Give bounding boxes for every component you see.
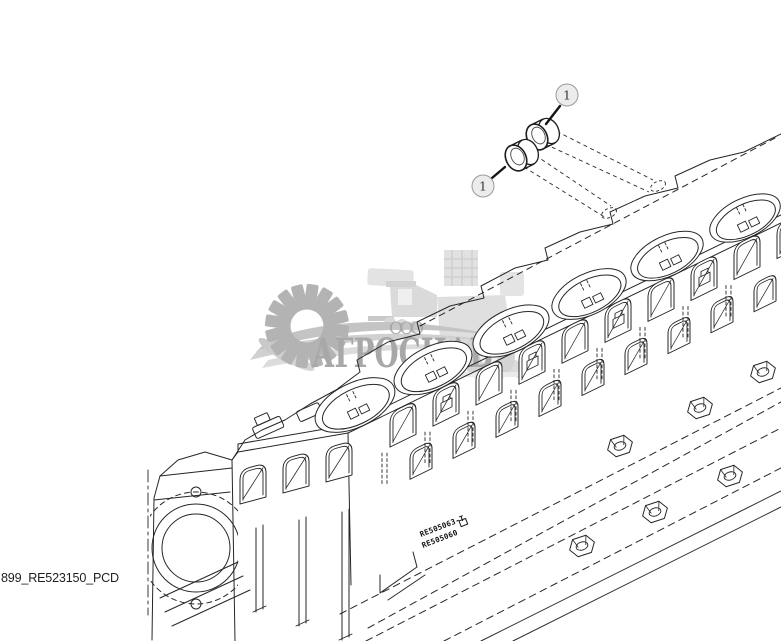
engine-block-line-art: RE505063-T RE505060: [140, 134, 781, 641]
parts-diagram-canvas: ООО АГРОСНАБ: [0, 0, 781, 641]
deck-corner-bosses: [249, 402, 323, 439]
dowel-hole: [600, 205, 618, 220]
oil-pan-rail: [380, 491, 781, 641]
callout-label: 1: [563, 88, 571, 103]
drawing-code-label: 899_RE523150_PCD: [1, 571, 119, 585]
front-end-face: [140, 452, 252, 641]
mount-bosses: [567, 359, 778, 558]
callout-label: 1: [479, 179, 487, 194]
cast-marking: RE505063-T RE505060: [418, 513, 467, 549]
diagram-svg: ООО АГРОСНАБ: [0, 0, 781, 641]
callout-1-upper: 1: [556, 84, 578, 106]
callout-1-lower: 1: [472, 175, 494, 197]
pushrod-tubes: [253, 509, 352, 640]
